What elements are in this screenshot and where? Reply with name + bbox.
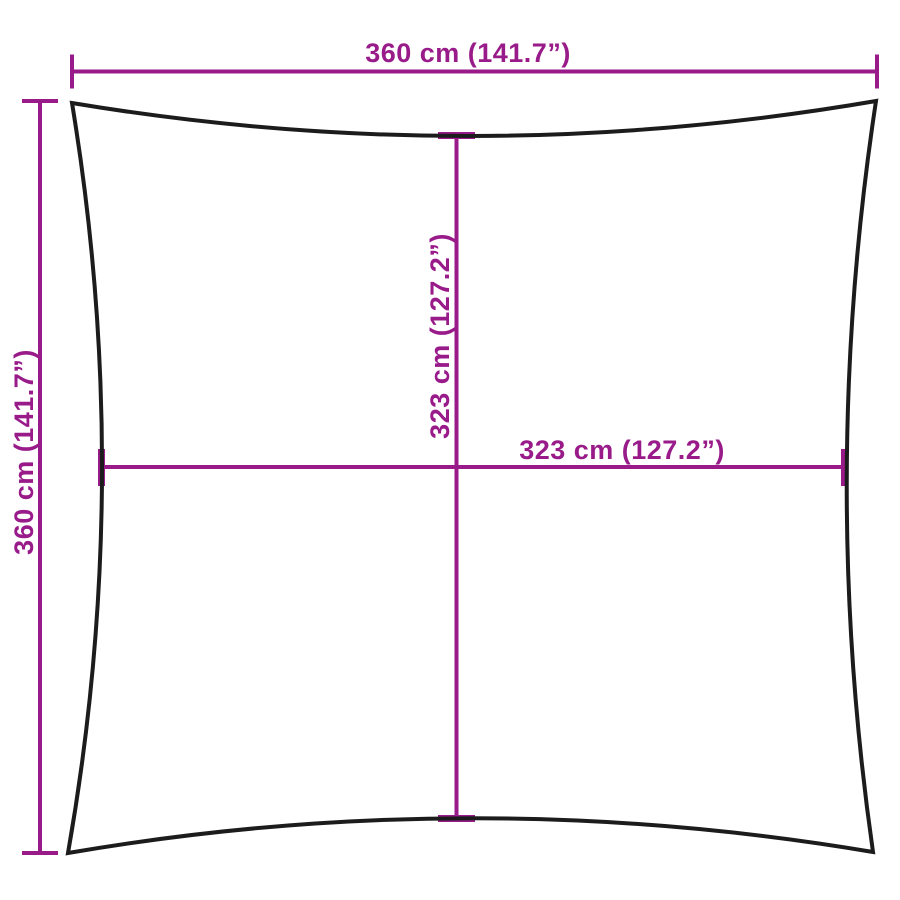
sail-outline xyxy=(68,101,876,853)
inner-width-dimension xyxy=(101,449,845,486)
overall-height-label: 360 cm (141.7”) xyxy=(9,349,39,555)
inner-height-label: 323 cm (127.2”) xyxy=(425,233,455,439)
shade-sail-dimension-diagram: 360 cm (141.7”) 360 cm (141.7”) 323 cm (… xyxy=(0,0,900,900)
overall-width-label: 360 cm (141.7”) xyxy=(365,38,571,68)
inner-width-label: 323 cm (127.2”) xyxy=(519,435,725,465)
dimension-diagram-canvas: 360 cm (141.7”) 360 cm (141.7”) 323 cm (… xyxy=(0,0,900,900)
